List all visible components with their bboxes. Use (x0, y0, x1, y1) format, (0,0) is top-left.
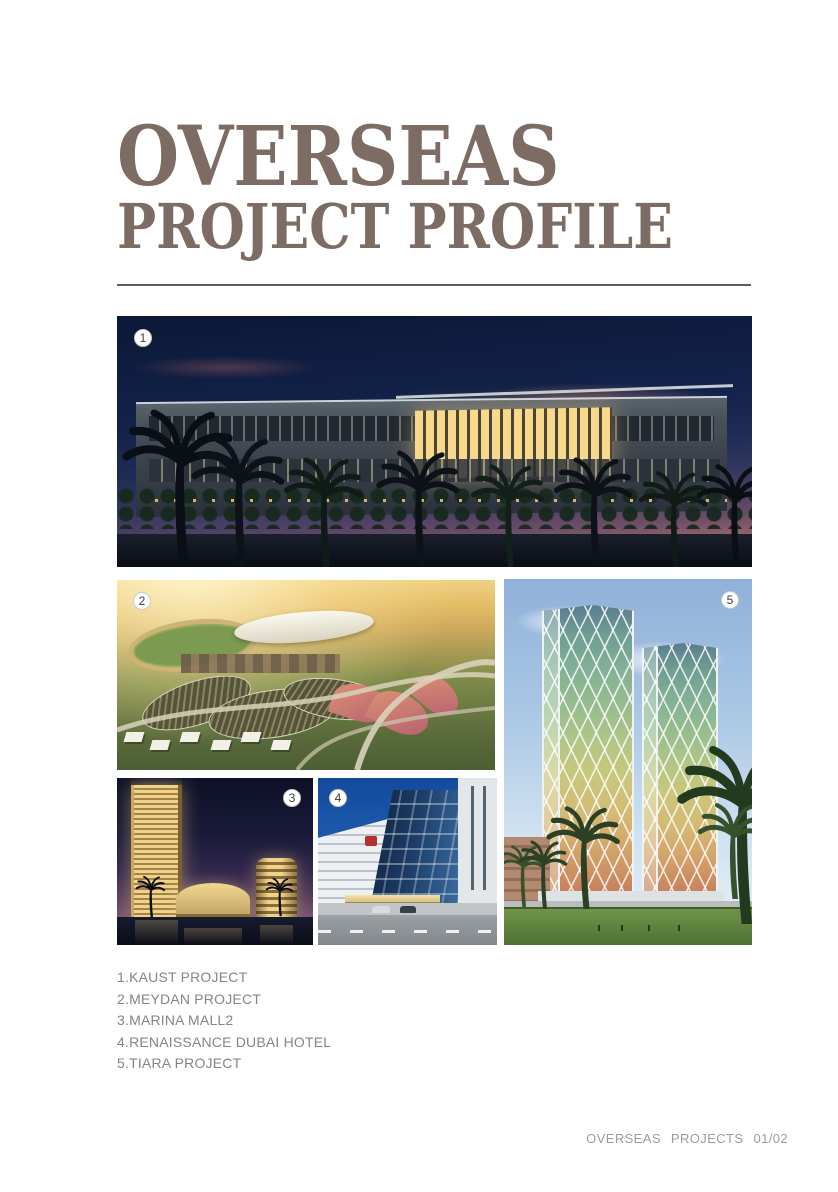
car (400, 906, 416, 913)
road-network (117, 580, 495, 770)
car (372, 906, 390, 913)
palm-icon (379, 453, 456, 567)
photo-number-badge: 3 (283, 789, 301, 807)
palm-icon (126, 413, 231, 567)
lane-marking (318, 930, 497, 933)
window-slits (462, 786, 492, 890)
photo-number-badge: 5 (721, 591, 739, 609)
photo-kaust-project: 1 (117, 316, 752, 567)
photo-number-badge: 4 (329, 789, 347, 807)
palm-icon (267, 879, 292, 917)
photo-meydan-project: 2 (117, 580, 495, 770)
caption-kaust: 1.KAUST PROJECT (117, 967, 331, 989)
palm-icon (700, 467, 753, 568)
palm-icon (641, 473, 705, 567)
palm-icon (682, 750, 752, 924)
page-title: OVERSEAS (117, 116, 560, 198)
title-divider (117, 284, 751, 286)
palm-group (504, 579, 752, 945)
photo-renaissance-dubai-hotel: 4 (318, 778, 497, 945)
photo-marina-mall2: 3 (117, 778, 313, 945)
photo-number-badge: 1 (134, 329, 152, 347)
palm-icon (474, 467, 542, 568)
photo-tiara-project: 5 (504, 579, 752, 945)
caption-meydan: 2.MEYDAN PROJECT (117, 989, 331, 1011)
palm-icon (549, 809, 617, 910)
palm-icon (287, 460, 360, 567)
caption-marina-mall2: 3.MARINA MALL2 (117, 1010, 331, 1032)
document-page: OVERSEAS PROJECT PROFILE 1 (0, 0, 838, 1192)
palm-icon (137, 877, 164, 917)
page-footer: OVERSEAS PROJECTS 01/02 (586, 1131, 788, 1146)
project-caption-list: 1.KAUST PROJECT 2.MEYDAN PROJECT 3.MARIN… (117, 967, 331, 1075)
palm-icon (557, 460, 630, 567)
white-tower (458, 778, 497, 908)
palm-row (117, 316, 752, 567)
caption-renaissance: 4.RENAISSANCE DUBAI HOTEL (117, 1032, 331, 1054)
hotel-logo-sign (365, 836, 378, 846)
photo-number-badge: 2 (133, 592, 151, 610)
caption-tiara: 5.TIARA PROJECT (117, 1053, 331, 1075)
page-subtitle: PROJECT PROFILE (117, 196, 673, 258)
